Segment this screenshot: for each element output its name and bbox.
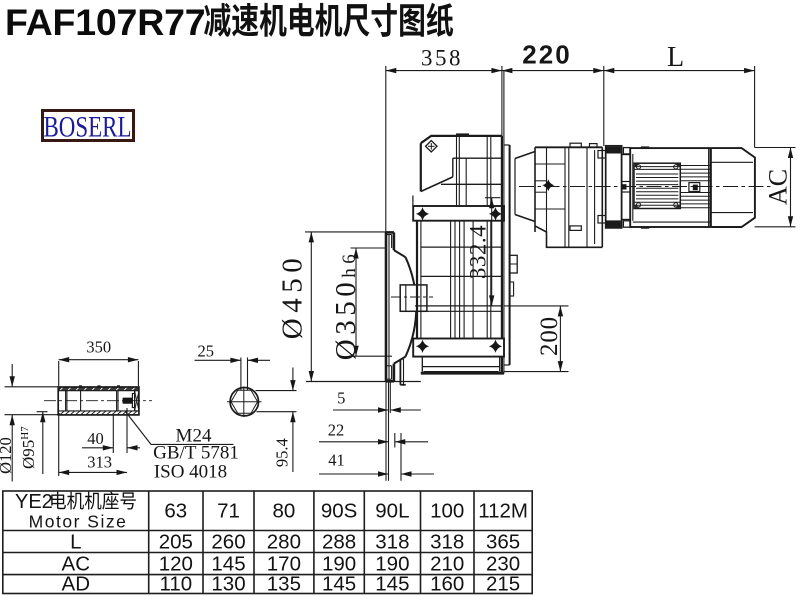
svg-text:L: L [667,42,684,73]
svg-text:Ø350h6: Ø350h6 [330,250,362,360]
svg-text:AD: AD [62,573,90,596]
svg-text:100: 100 [430,500,464,523]
svg-text:22: 22 [328,421,345,440]
svg-text:AC: AC [764,169,793,205]
svg-text:41: 41 [328,451,345,470]
svg-text:71: 71 [217,500,240,523]
svg-text:200: 200 [536,316,563,356]
svg-text:145: 145 [322,573,356,596]
svg-text:220: 220 [522,40,571,70]
svg-text:5: 5 [337,389,345,408]
svg-text:350: 350 [86,338,111,357]
svg-text:358: 358 [421,46,463,71]
svg-text:110: 110 [159,573,192,596]
svg-text:205: 205 [159,531,193,554]
svg-text:288: 288 [322,531,356,554]
svg-text:40: 40 [87,429,104,448]
svg-text:95.4: 95.4 [273,438,292,467]
svg-text:25: 25 [197,341,214,360]
svg-text:160: 160 [430,573,464,596]
svg-text:63: 63 [164,500,187,523]
svg-text:318: 318 [430,531,464,554]
svg-text:Ø95H7: Ø95H7 [19,426,38,469]
svg-text:318: 318 [375,531,409,554]
svg-text:90S: 90S [321,500,357,523]
svg-text:135: 135 [267,573,301,596]
svg-text:130: 130 [211,573,245,596]
svg-text:365: 365 [486,531,520,554]
svg-text:280: 280 [267,531,301,554]
svg-text:260: 260 [211,531,245,554]
svg-text:90L: 90L [375,500,409,523]
svg-text:ISO 4018: ISO 4018 [154,462,227,483]
svg-text:80: 80 [272,500,295,523]
svg-text:L: L [70,531,81,554]
svg-text:145: 145 [375,573,409,596]
svg-text:FAF107R77: FAF107R77 [5,1,205,43]
svg-text:215: 215 [486,573,520,596]
svg-text:332.4: 332.4 [466,225,491,279]
svg-text:YE2: YE2 [15,491,53,513]
svg-text:Ø120: Ø120 [0,437,15,474]
svg-text:BOSERL: BOSERL [44,111,132,144]
svg-text:GB/T 5781: GB/T 5781 [153,443,239,464]
svg-text:112M: 112M [478,500,528,523]
svg-text:Ø450: Ø450 [277,253,309,339]
svg-text:Motor Size: Motor Size [29,512,128,532]
svg-text:313: 313 [87,453,112,472]
